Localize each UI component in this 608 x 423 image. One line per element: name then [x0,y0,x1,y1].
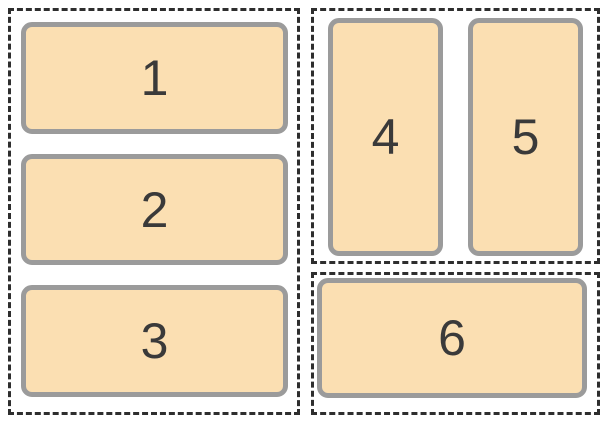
box-4-label: 4 [372,112,400,162]
numbered-box-2: 2 [21,154,288,266]
numbered-box-6: 6 [317,278,587,398]
dashed-group-right-top: 4 5 [311,8,600,264]
dashed-group-left: 1 2 3 [8,8,300,415]
numbered-box-4: 4 [328,18,443,256]
right-column: 4 5 6 [311,8,600,415]
numbered-box-3: 3 [21,285,288,397]
box-3-label: 3 [141,316,169,366]
box-2-label: 2 [141,185,169,235]
box-5-label: 5 [512,112,540,162]
box-6-label: 6 [438,313,466,363]
layout-diagram-canvas: 1 2 3 4 5 6 [0,0,608,423]
numbered-box-1: 1 [21,22,288,134]
dashed-group-right-bottom: 6 [311,272,600,415]
numbered-box-5: 5 [468,18,583,256]
box-1-label: 1 [141,53,169,103]
